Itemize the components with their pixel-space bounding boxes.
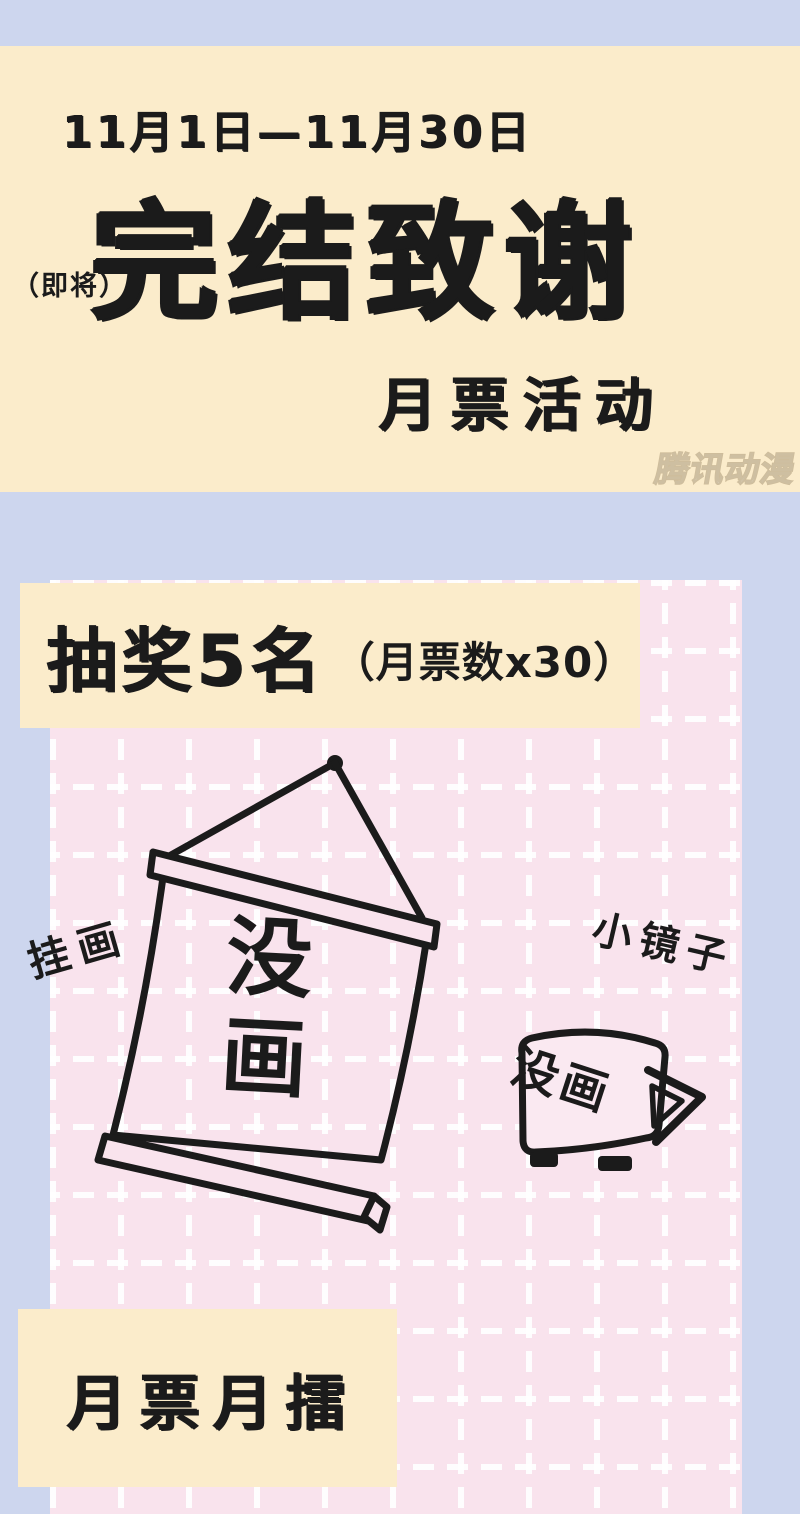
main-title: 完结致谢 — [90, 168, 642, 360]
event-date-range: 11月1日—11月30日 — [62, 96, 532, 160]
mirror-foot-right — [598, 1156, 632, 1171]
scroll-string-right — [335, 763, 422, 918]
event-poster: 11月1日—11月30日 （即将） 完结致谢 月票活动 腾讯动漫 挂画 没画 小… — [0, 0, 800, 1514]
ranking-banner-text: 月票月擂 — [66, 1355, 358, 1442]
header-banner: 11月1日—11月30日 （即将） 完结致谢 月票活动 腾讯动漫 — [0, 46, 800, 492]
lottery-banner-note: （月票数x30） — [333, 621, 637, 690]
mirror-foot-left — [530, 1152, 558, 1167]
tencent-comics-watermark: 腾讯动漫 — [652, 442, 800, 491]
ranking-banner: 月票月擂 — [18, 1309, 397, 1487]
scroll-string-left — [162, 763, 335, 860]
lottery-banner-main: 抽奖5名 — [46, 605, 325, 706]
lottery-banner: 抽奖5名 （月票数x30） — [20, 583, 640, 728]
hanging-scroll-note: 没画 — [191, 909, 326, 1115]
subtitle: 月票活动 — [378, 358, 666, 442]
